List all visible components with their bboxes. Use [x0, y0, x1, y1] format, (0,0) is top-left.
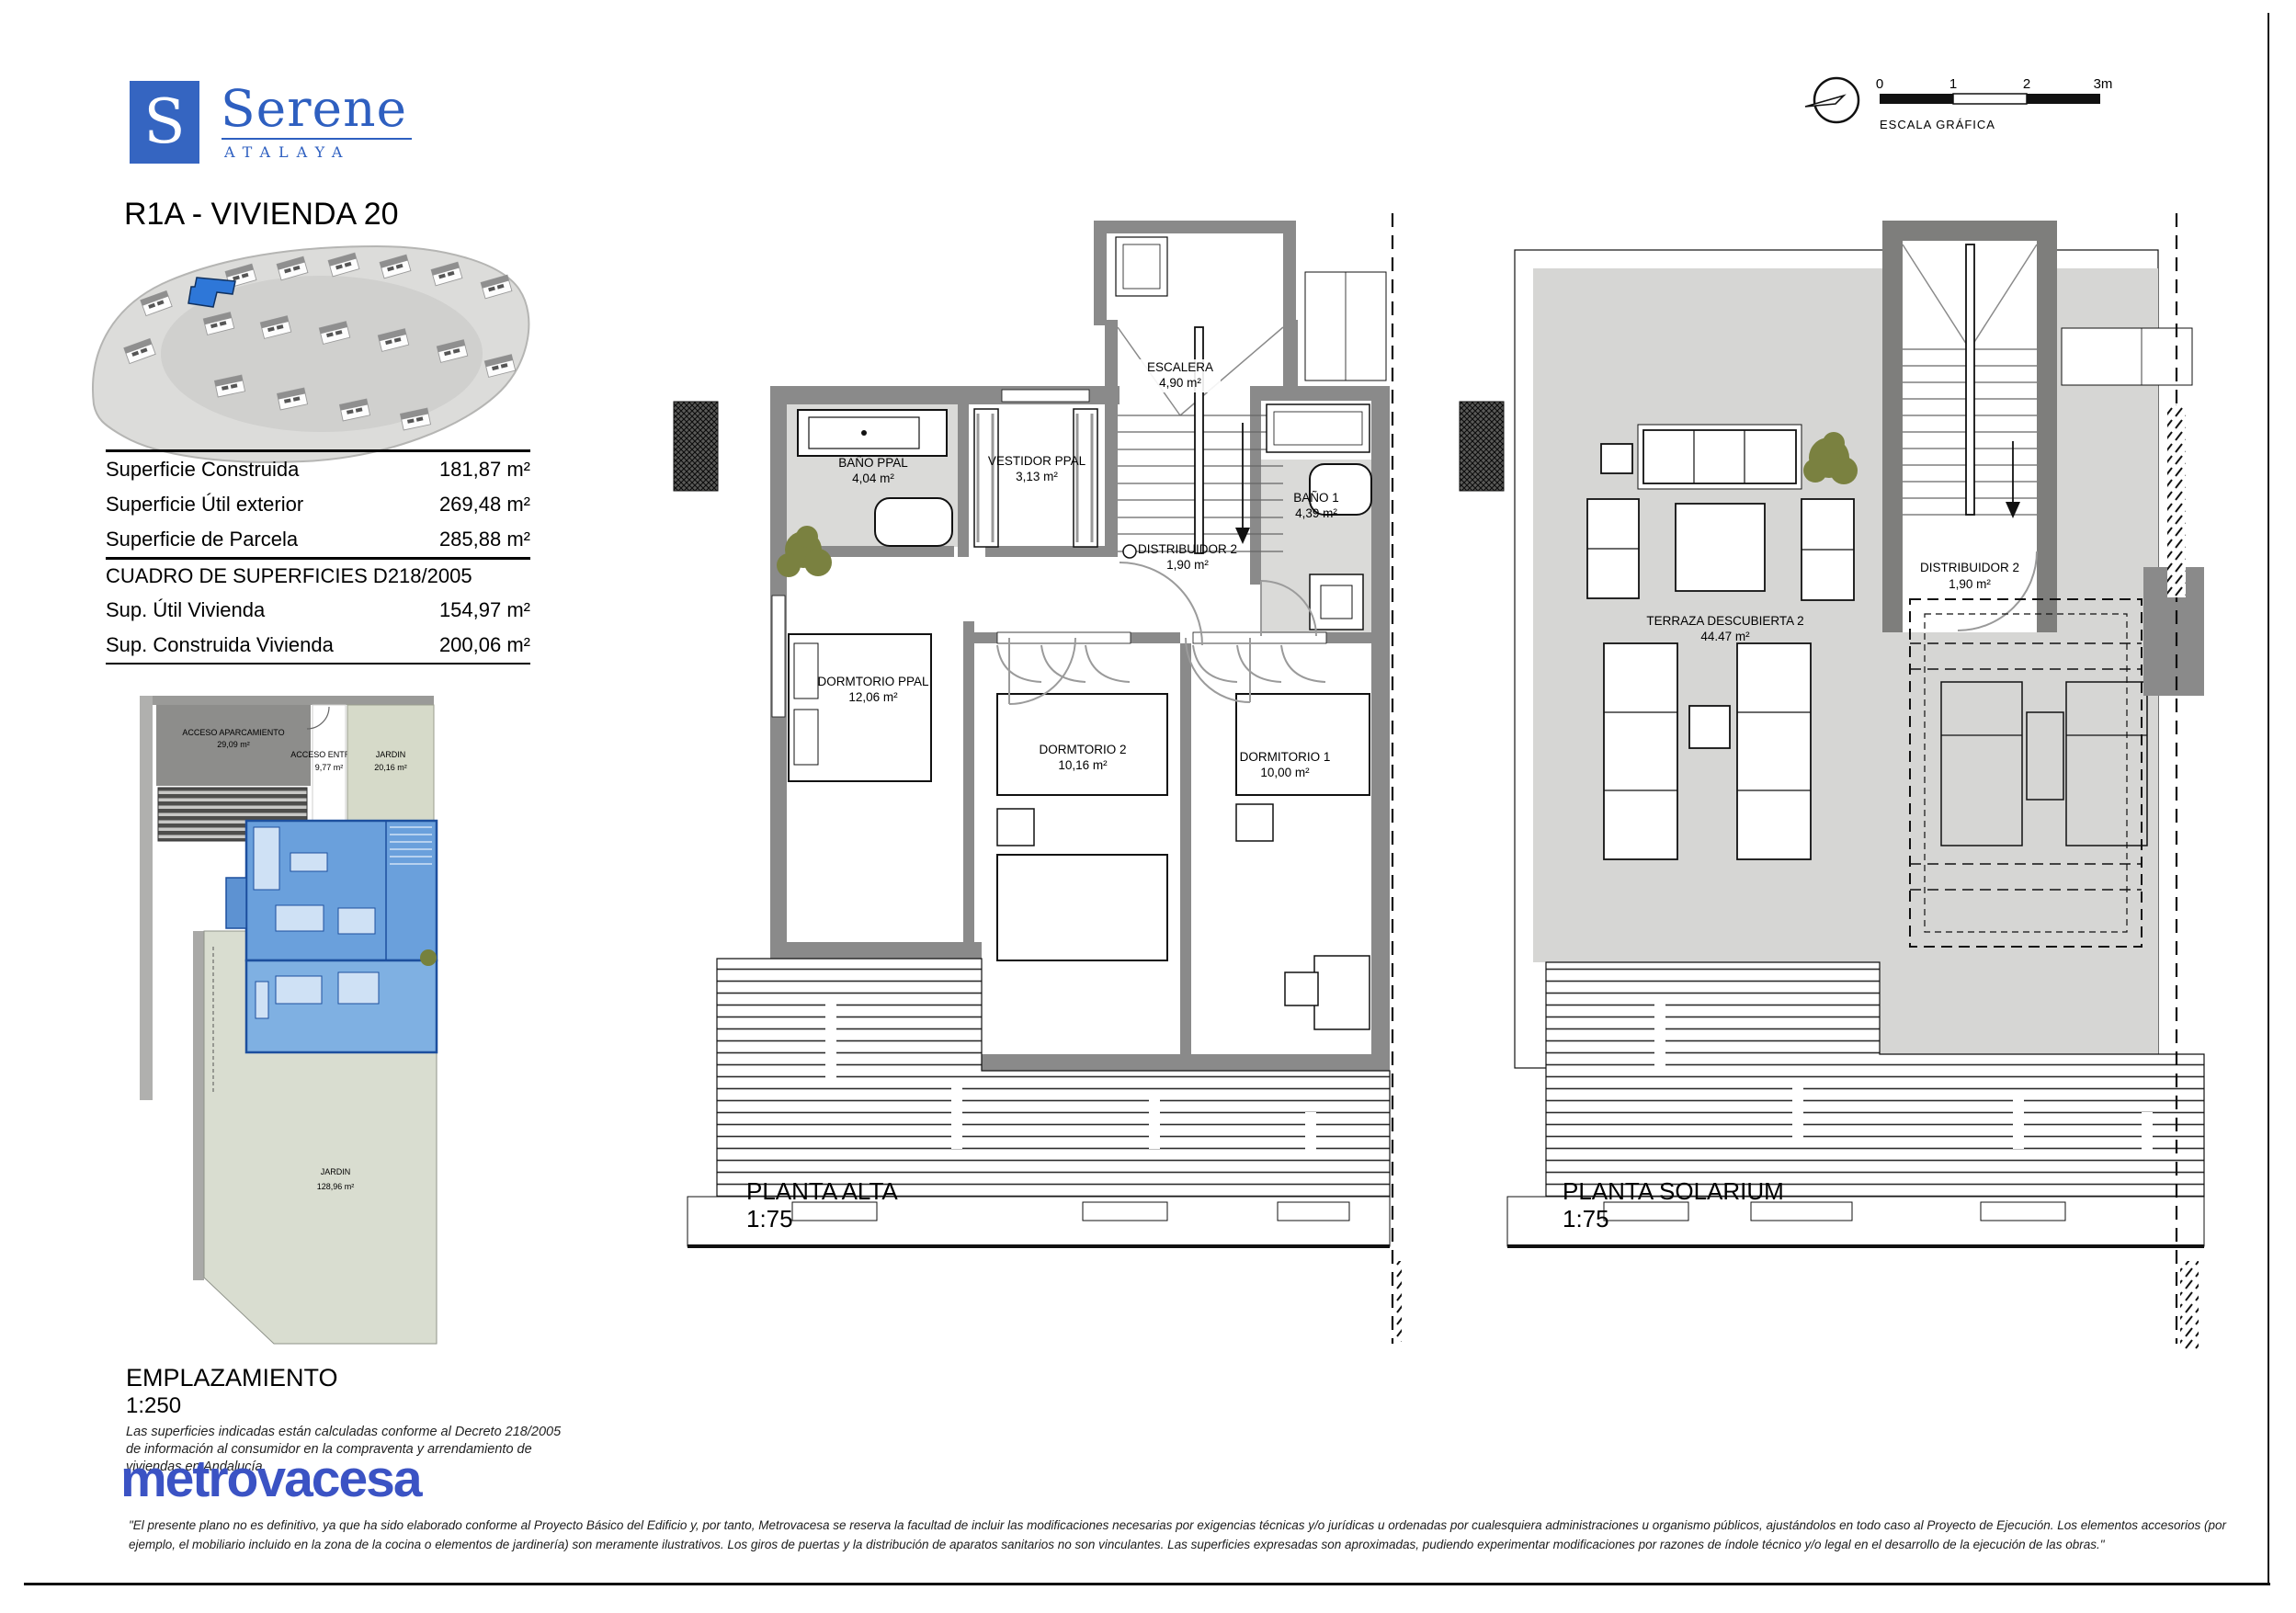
window — [2062, 328, 2192, 385]
area-value: 20,16 m² — [374, 763, 407, 772]
surface-table: Superficie Construida 181,87 m² Superfic… — [106, 449, 530, 665]
table-rule — [106, 663, 530, 665]
boundary-hatch — [1395, 1261, 1402, 1342]
plant-icon — [420, 949, 437, 966]
room-label: VESTIDOR PPAL — [988, 454, 1086, 468]
area-value: 9,77 m² — [315, 763, 344, 772]
window — [772, 596, 785, 717]
row-value: 181,87 m² — [439, 452, 530, 487]
scale-caption: ESCALA GRÁFICA — [1880, 118, 1995, 131]
planta-solarium-caption: PLANTA SOLARIUM 1:75 — [1563, 1177, 1784, 1232]
row-label: Sup. Construida Vivienda — [106, 628, 334, 663]
room-label: DORMITORIO 1 — [1240, 750, 1331, 764]
hatched-lightwell — [1460, 402, 1504, 491]
scale-tick: 0 — [1876, 76, 1883, 92]
window — [1002, 390, 1089, 402]
room-label: DORMTORIO 2 — [1039, 743, 1126, 756]
skylight — [1116, 237, 1167, 296]
room-area: 1,90 m² — [1949, 577, 1991, 591]
room-label: DORMTORIO PPAL — [817, 675, 929, 688]
sheet-border-bottom — [24, 1583, 2270, 1585]
row-label: Superficie Útil exterior — [106, 487, 303, 522]
window — [1193, 632, 1326, 643]
legal-disclaimer: "El presente plano no es definitivo, ya … — [129, 1516, 2270, 1555]
plan-scale: 1:75 — [746, 1205, 898, 1232]
row-label: Superficie de Parcela — [106, 522, 298, 557]
row-label: Superficie Construida — [106, 452, 299, 487]
table-section-title: CUADRO DE SUPERFICIES D218/2005 — [106, 560, 530, 593]
window — [997, 632, 1131, 643]
brand-rule — [222, 138, 412, 140]
room-label: DISTRIBUIDOR 2 — [1920, 561, 2019, 574]
scale-tick: 2 — [2023, 76, 2030, 92]
north-needle-icon — [1805, 96, 1844, 107]
room-area: 10,00 m² — [1260, 766, 1310, 779]
area-label: ACCESO APARCAMIENTO — [182, 728, 284, 737]
sheet-border-right — [2268, 13, 2269, 1583]
area-value: 29,09 m² — [217, 740, 250, 749]
room-area: 3,13 m² — [1016, 470, 1058, 483]
plan-title: PLANTA ALTA — [746, 1177, 898, 1205]
table-row: Superficie Útil exterior 269,48 m² — [106, 487, 530, 522]
parcel-wall — [193, 931, 204, 1280]
parcel-wall — [140, 696, 434, 705]
room-label: BAÑO 1 — [1293, 491, 1339, 505]
room-area: 4,04 m² — [852, 471, 894, 485]
row-value: 285,88 m² — [439, 522, 530, 557]
boundary-hatch — [2167, 404, 2186, 597]
hatched-lightwell — [674, 402, 718, 491]
table-row: Sup. Útil Vivienda 154,97 m² — [106, 593, 530, 628]
room-label: ESCALERA — [1147, 360, 1213, 374]
row-label: Sup. Útil Vivienda — [106, 593, 265, 628]
table-row: Superficie Construida 181,87 m² — [106, 452, 530, 487]
plan-title: PLANTA SOLARIUM — [1563, 1177, 1784, 1205]
room-label: BAÑO PPAL — [838, 456, 908, 470]
serene-logo-icon: S — [130, 81, 199, 164]
boundary-hatch — [2180, 1261, 2199, 1351]
area-label: JARDIN — [376, 750, 406, 759]
room-area: 12,06 m² — [848, 690, 898, 704]
room-area: 1,90 m² — [1166, 558, 1209, 572]
table-row: Superficie de Parcela 285,88 m² — [106, 522, 530, 557]
scale-bar: 0 1 2 3m ESCALA GRÁFICA — [1797, 51, 2155, 142]
row-value: 154,97 m² — [439, 593, 530, 628]
row-value: 200,06 m² — [439, 628, 530, 663]
area-value: 128,96 m² — [317, 1182, 355, 1191]
row-value: 269,48 m² — [439, 487, 530, 522]
room-area: 10,16 m² — [1058, 758, 1108, 772]
parcel-wall — [140, 696, 153, 1100]
scale-tick: 1 — [1949, 76, 1957, 92]
room-area: 4,90 m² — [1159, 376, 1201, 390]
plan-scale: 1:75 — [1563, 1205, 1784, 1232]
emplazamiento-scale: 1:250 — [126, 1393, 181, 1419]
emplazamiento-plan: ACCESO APARCAMIENTO 29,09 m² ACCESO ENTR… — [119, 689, 460, 1369]
room-area: 4,39 m² — [1295, 506, 1337, 520]
highlighted-ground-floor — [226, 821, 437, 1052]
emplazamiento-title: EMPLAZAMIENTO — [126, 1364, 338, 1392]
logo-initial: S — [143, 92, 185, 153]
room-label: DISTRIBUIDOR 2 — [1138, 542, 1237, 556]
brand-subname: ATALAYA — [224, 143, 350, 161]
room-area: 44.47 m² — [1700, 630, 1750, 643]
table-row: Sup. Construida Vivienda 200,06 m² — [106, 628, 530, 663]
plan-sheet: S Serene ATALAYA R1A - VIVIENDA 20 0 1 2… — [0, 0, 2296, 1613]
room-label: TERRAZA DESCUBIERTA 2 — [1646, 614, 1803, 628]
graphic-scale: 0 1 2 3m ESCALA GRÁFICA — [1876, 76, 2113, 131]
metrovacesa-logo: metrovacesa — [120, 1448, 421, 1509]
area-label: JARDIN — [321, 1167, 351, 1176]
brand-name: Serene — [221, 79, 407, 138]
page-title: R1A - VIVIENDA 20 — [124, 197, 399, 233]
area-acceso-entrada — [313, 705, 346, 839]
scale-tick: 3m — [2094, 76, 2113, 92]
planta-alta-caption: PLANTA ALTA 1:75 — [746, 1177, 898, 1232]
